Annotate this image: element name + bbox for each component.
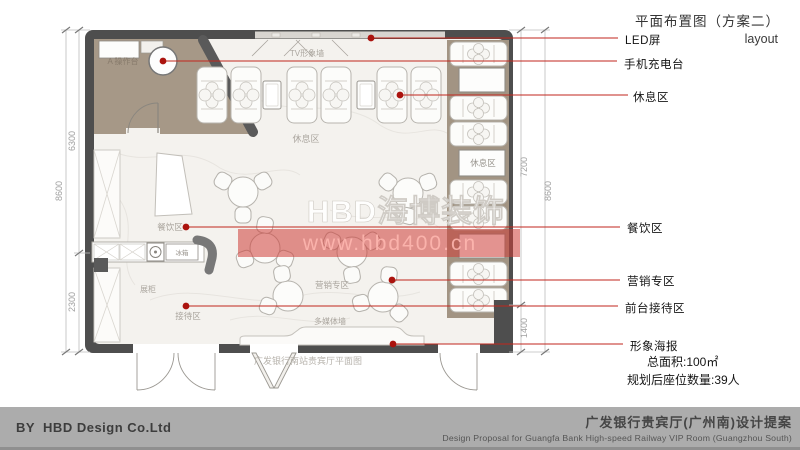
sofa-unit bbox=[321, 67, 351, 123]
dining-label: 餐饮区 bbox=[157, 222, 183, 232]
footer-company: BY HBD Design Co.Ltd bbox=[16, 420, 171, 435]
sofa-unit bbox=[197, 67, 227, 123]
rest-area-top-label: 休息区 bbox=[292, 133, 319, 144]
dim-right-upper: 7200 bbox=[519, 157, 529, 177]
wall-column bbox=[494, 300, 513, 353]
footer-project-cn: 广发银行贵宾厅(广州南)设计提案 bbox=[442, 412, 792, 431]
dim-left-lower: 2300 bbox=[67, 292, 77, 312]
plan-caption: 广发银行南站贵宾厅平面图 bbox=[254, 355, 362, 366]
callout-reception-area: 前台接待区 bbox=[625, 300, 685, 316]
sofa-unit bbox=[450, 262, 507, 286]
fridge-label: 冰箱 bbox=[176, 248, 190, 257]
dim-right-total: 8600 bbox=[543, 181, 553, 201]
display-cabinet-label: 展柜 bbox=[140, 284, 156, 294]
dim-left-upper: 6300 bbox=[67, 131, 77, 151]
footer-project: 广发银行贵宾厅(广州南)设计提案 Design Proposal for Gua… bbox=[442, 412, 792, 443]
side-table bbox=[459, 68, 505, 92]
sofa-unit bbox=[450, 122, 507, 146]
tv-wall-label: TV形象墙 bbox=[290, 48, 324, 58]
sofa-unit bbox=[450, 42, 507, 66]
callout-image-poster: 形象海报 bbox=[630, 338, 678, 354]
callout-led-screen: LED屏 bbox=[625, 32, 661, 48]
sofa-unit bbox=[231, 67, 261, 123]
footer-project-en: Design Proposal for Guangfa Bank High-sp… bbox=[442, 433, 792, 443]
callout-phone-charging: 手机充电台 bbox=[624, 56, 684, 72]
dim-left-total: 8600 bbox=[54, 181, 64, 201]
sofa-unit bbox=[287, 67, 317, 123]
sofa-unit bbox=[450, 96, 507, 120]
dim-right-lower: 1400 bbox=[519, 318, 529, 338]
watermark-url: www.hbd400.cn bbox=[302, 232, 477, 255]
watermark-brand: HBD海博装饰 bbox=[307, 194, 505, 229]
design-sheet: A 操作台 TV形象墙 休息区 bbox=[0, 0, 800, 450]
footer-bar: BY HBD Design Co.Ltd 广发银行贵宾厅(广州南)设计提案 De… bbox=[0, 407, 800, 450]
callout-marketing-area: 营销专区 bbox=[627, 273, 675, 289]
callout-rest-area: 休息区 bbox=[633, 89, 669, 105]
side-table bbox=[263, 81, 281, 109]
operation-door-gap bbox=[126, 128, 160, 136]
stat-seat-count: 规划后座位数量:39人 bbox=[627, 371, 740, 388]
callout-dining-area: 餐饮区 bbox=[627, 220, 663, 236]
sheet-title-cn: 平面布置图（方案二） bbox=[635, 10, 780, 30]
rest-area-right-label: 休息区 bbox=[470, 158, 496, 168]
stat-total-area: 总面积:100㎡ bbox=[647, 353, 718, 370]
side-table bbox=[357, 81, 375, 109]
operation-room-label: A 操作台 bbox=[107, 56, 138, 66]
marketing-label: 营销专区 bbox=[315, 280, 350, 290]
media-wall-label: 多媒体墙 bbox=[314, 316, 346, 326]
reception-label: 接待区 bbox=[175, 311, 201, 321]
operation-counter bbox=[99, 41, 139, 58]
